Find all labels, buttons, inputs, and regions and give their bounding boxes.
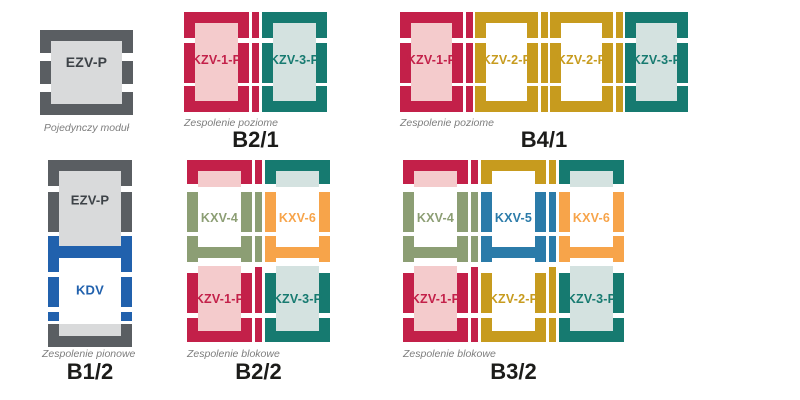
module-side-flashing [481,160,492,184]
module-side-flashing [316,86,327,112]
module-side-flashing [265,160,276,184]
module-top-flashing [40,30,133,41]
module-side-flashing [184,86,195,112]
module-side-flashing [238,86,249,112]
module-side-flashing [457,160,468,184]
joint-strip [252,43,259,83]
module-code-label: KDV [48,283,132,298]
module-fill [276,171,319,187]
module-side-flashing [677,12,688,38]
module-side-flashing [452,12,463,38]
module-side-flashing [403,236,414,262]
module-side-flashing [457,236,468,262]
h-connector-bar [59,246,121,258]
joint-strip [255,236,262,262]
joint-strip [255,160,262,184]
module-side-flashing [262,12,273,38]
joint-strip [255,318,262,342]
module-side-flashing [475,86,486,112]
module-side-flashing [265,236,276,262]
joint-strip [549,318,556,342]
module-side-flashing [613,236,624,262]
combo-size-label: B3/2 [490,361,536,383]
module-side-flashing [559,160,570,184]
module-side-flashing [602,12,613,38]
module-side-flashing [187,236,198,262]
diagram-b2-2: KXV-4KZV-1-PKXV-6KZV-3-P Zespolenie blok… [187,160,330,395]
module-code-label: KZV-1-P [403,292,468,306]
diagram-caption: Zespolenie poziome [400,117,494,129]
diagram-caption: Pojedynczy moduł [44,122,129,134]
module-code-label: KXV-4 [403,211,468,225]
module-side-flashing [527,12,538,38]
module-side-flashing [613,160,624,184]
module-side-flashing [316,12,327,38]
module-code-label: KXV-6 [265,211,330,225]
flashing-combination-chart: EZV-P Pojedynczy moduł KZV-1-PKZV-3-P Ze… [0,0,800,400]
module-code-label: KZV-1-P [184,53,249,67]
h-connector-bar [276,247,319,258]
diagram-b3-2: KXV-4KZV-1-PKXV-5KZV-2-PKXV-6KZV-3-P Zes… [403,160,624,395]
module-code-label: KXV-5 [481,211,546,225]
module-code-label: KZV-2-P [550,53,613,67]
module-code-label: EZV-P [40,54,133,70]
joint-strip [549,192,556,232]
module-code-label: KZV-2-P [481,292,546,306]
module-window-fill [51,41,122,104]
module-code-label: KZV-3-P [559,292,624,306]
module-side-flashing [677,86,688,112]
joint-strip [616,12,623,38]
module-bottom-flashing [48,336,132,347]
module-side-flashing [121,236,132,272]
module-side-flashing [187,160,198,184]
joint-strip [541,43,548,83]
module-side-flashing [452,86,463,112]
module-side-flashing [122,30,133,53]
module-side-flashing [625,86,636,112]
joint-strip [466,86,473,112]
module-side-flashing [121,312,132,321]
module-bottom-flashing [187,331,252,342]
combo-size-label: B4/1 [521,129,567,151]
module-side-flashing [122,92,133,115]
joint-strip [471,267,478,313]
module-side-flashing [400,12,411,38]
module-side-flashing [625,12,636,38]
h-connector-bar [414,247,457,258]
module-code-label: KZV-3-P [262,53,327,67]
joint-strip [616,43,623,83]
combo-size-label: B1/2 [67,361,113,383]
module-side-flashing [527,86,538,112]
joint-strip [549,267,556,313]
module-code-label: KXV-4 [187,211,252,225]
module-side-flashing [481,236,492,262]
joint-strip [541,86,548,112]
module-fill [570,171,613,187]
module-side-flashing [262,86,273,112]
module-fill [414,171,457,187]
h-connector-bar [198,247,241,258]
h-connector-bar [492,247,535,258]
joint-strip [471,192,478,232]
module-side-flashing [319,236,330,262]
module-side-flashing [535,160,546,184]
joint-strip [466,43,473,83]
module-side-flashing [400,86,411,112]
module-side-flashing [238,12,249,38]
module-side-flashing [241,160,252,184]
module-window-fill [59,171,121,246]
joint-strip [549,160,556,184]
module-side-flashing [40,30,51,53]
module-side-flashing [475,12,486,38]
diagram-b2-1: KZV-1-PKZV-3-P Zespolenie poziome B2/1 [184,12,327,162]
module-side-flashing [403,160,414,184]
module-side-flashing [559,236,570,262]
combo-size-label: B2/2 [235,361,281,383]
module-side-flashing [48,160,59,186]
joint-strip [541,12,548,38]
diagram-b1-2: EZV-PKDV Zespolenie pionowe B1/2 [48,160,132,395]
diagram-caption: Zespolenie blokowe [403,348,496,360]
module-side-flashing [121,160,132,186]
module-side-flashing [602,86,613,112]
joint-strip [255,192,262,232]
module-bottom-flashing [403,331,468,342]
joint-strip [255,267,262,313]
module-code-label: KZV-2-P [475,53,538,67]
module-side-flashing [184,12,195,38]
module-side-flashing [48,236,59,272]
diagram-single-module: EZV-P Pojedynczy moduł [40,30,133,160]
h-connector-bar [570,247,613,258]
module-bottom-flashing [265,331,330,342]
module-bottom-flashing [559,331,624,342]
module-top-flashing [48,160,132,171]
joint-strip [616,86,623,112]
module-side-flashing [40,92,51,115]
module-side-flashing [550,86,561,112]
module-fill [59,324,121,336]
module-side-flashing [48,312,59,321]
diagram-b4-1: KZV-1-PKZV-2-PKZV-2-PKZV-3-P Zespolenie … [400,12,688,162]
joint-strip [471,318,478,342]
module-code-label: KZV-1-P [400,53,463,67]
module-code-label: KZV-1-P [187,292,252,306]
joint-strip [471,236,478,262]
module-side-flashing [550,12,561,38]
joint-strip [549,236,556,262]
module-fill [492,171,535,187]
module-side-flashing [535,236,546,262]
joint-strip [471,160,478,184]
module-side-flashing [319,160,330,184]
joint-strip [252,86,259,112]
joint-strip [252,12,259,38]
module-fill [198,171,241,187]
combo-size-label: B2/1 [232,129,278,151]
module-code-label: KZV-3-P [625,53,688,67]
module-bottom-flashing [40,104,133,115]
module-bottom-flashing [481,331,546,342]
module-side-flashing [241,236,252,262]
module-code-label: KZV-3-P [265,292,330,306]
module-code-label: EZV-P [48,193,132,208]
joint-strip [466,12,473,38]
module-code-label: KXV-6 [559,211,624,225]
